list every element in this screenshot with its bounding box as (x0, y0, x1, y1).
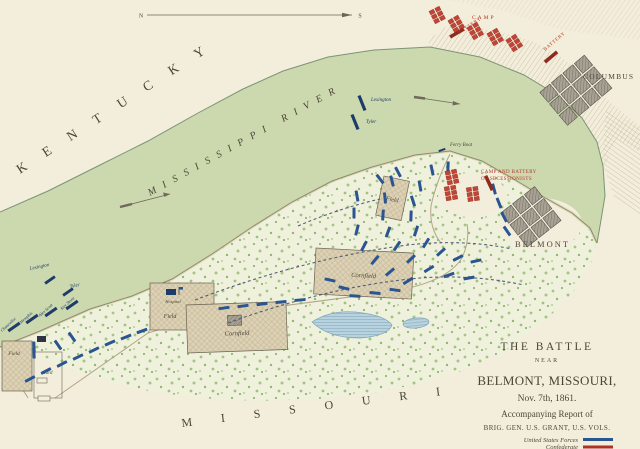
tyler-mid-label: Tyler (366, 120, 376, 125)
title-line4: Nov. 7th, 1861. (518, 394, 577, 404)
legend-confederate-swatch (583, 446, 613, 449)
legend-confederate-label: Confederate (546, 444, 578, 449)
secession-camp-label-line1: CAMP AND BATTERY (481, 170, 537, 175)
hospital-label: Hospital (164, 299, 181, 304)
hospital-flag-icon (179, 287, 183, 290)
title-line1: THE BATTLE (500, 341, 593, 353)
union-unit-bar (32, 347, 35, 358)
field-hospital-label: Field (163, 314, 178, 320)
secession-camp-label-line2: OF SECESSIONISTS (481, 177, 532, 182)
union-unit-bar (353, 208, 356, 219)
title-line5: Accompanying Report of (501, 409, 592, 419)
legend-union-label: United States Forces (524, 437, 579, 444)
hospital-building (166, 289, 176, 295)
map-canvas: Field Cornfield Hospital Field Cornfield… (0, 0, 640, 449)
compass-north-label: N (139, 14, 144, 20)
title-line2: NEAR (535, 358, 559, 364)
union-unit-bar (409, 210, 412, 221)
title-line3: BELMONT, MISSOURI, (477, 373, 616, 388)
legend-union-swatch (583, 438, 613, 441)
yard-building (37, 378, 47, 383)
ferry-boat-label: Ferry Boat (449, 143, 473, 148)
yard-building (38, 396, 50, 401)
belmont-label: BELMONT (515, 239, 570, 249)
columbus-label: COLUMBUS (583, 72, 634, 81)
lexington-mid-label: Lexington (370, 98, 391, 103)
cornfield-center-label: Cornfield (351, 272, 377, 280)
west-cornfield: Cornfield (186, 302, 288, 353)
compass-south-label: S (358, 14, 361, 20)
cornfield-west-label: Cornfield (224, 330, 250, 338)
field-sw-label: Field (7, 351, 20, 357)
southwest-field: Field (2, 341, 32, 391)
title-line6: BRIG. GEN. U.S. GRANT, U.S. VOLS. (484, 424, 611, 432)
belmont-battle-map: Field Cornfield Hospital Field Cornfield… (0, 0, 640, 449)
farm-house (37, 336, 46, 342)
